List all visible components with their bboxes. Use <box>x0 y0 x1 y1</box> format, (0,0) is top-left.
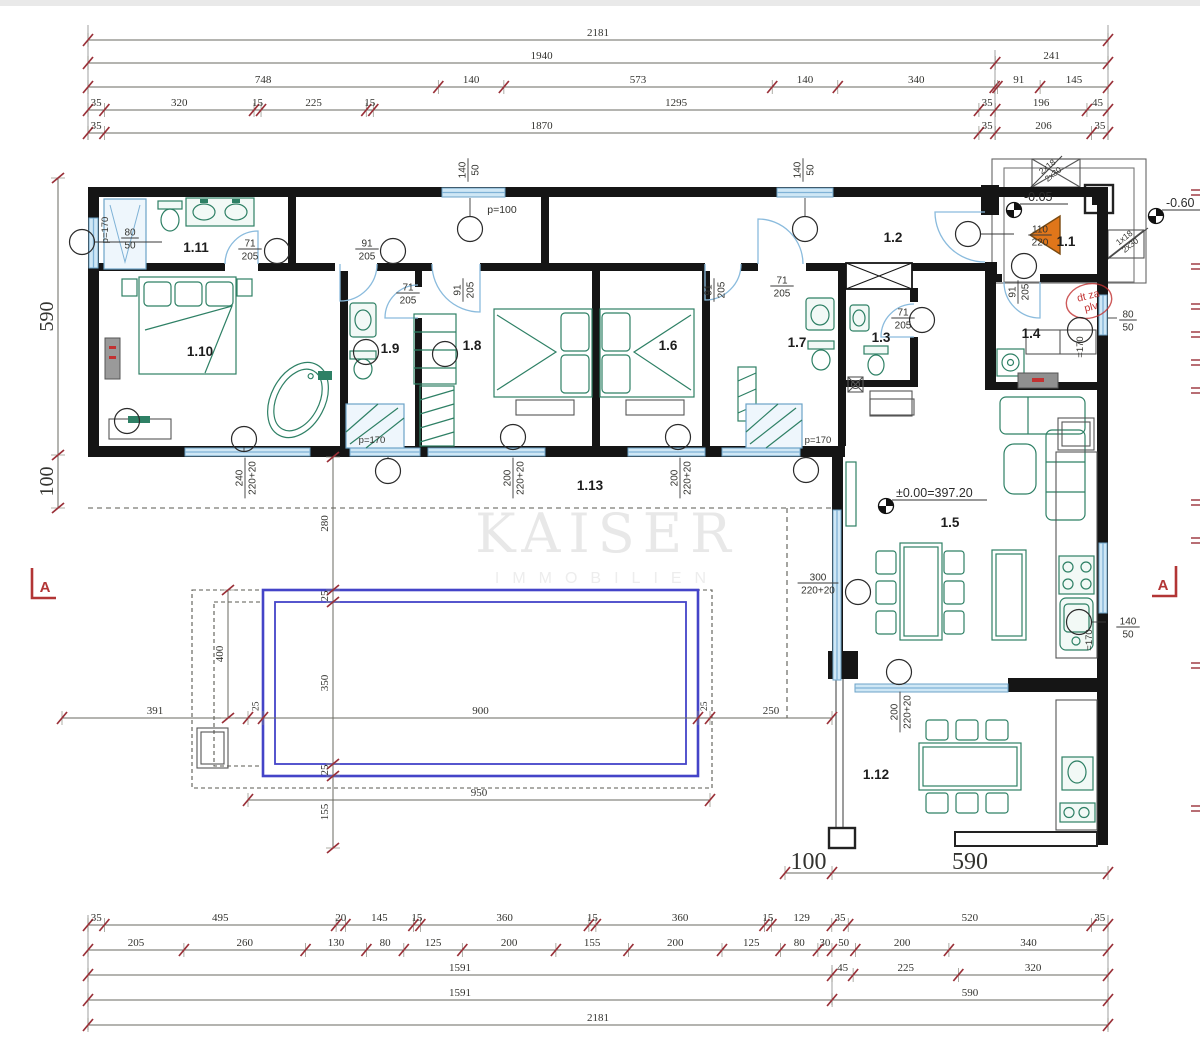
plan-note-text: p=170 <box>359 435 386 446</box>
dim-value: 45 <box>837 962 849 974</box>
room-label: 1.13 <box>577 478 604 493</box>
opening-size-label: 91205 <box>1008 280 1032 303</box>
outdoor-table <box>919 743 1021 790</box>
dim-value: 196 <box>1033 97 1050 109</box>
dim-value: 520 <box>962 912 979 924</box>
dim-value: 900 <box>472 705 489 717</box>
plan-note: p=170 <box>805 435 832 446</box>
coffee-table <box>1004 444 1036 494</box>
dim-value: 206 <box>1035 120 1052 132</box>
dim-value: 140 <box>1120 617 1137 628</box>
dim-value: 2181 <box>587 27 609 39</box>
chair <box>926 793 948 813</box>
opening-size-label: 240220+20 <box>235 458 259 499</box>
dim-value: 91 <box>1013 74 1024 86</box>
dim-value: 205 <box>400 296 417 307</box>
dim-value: 15 <box>252 97 264 109</box>
dim-value: 130 <box>328 937 345 949</box>
dim-value: 140 <box>797 74 814 86</box>
dim-value: 91 <box>1008 286 1019 298</box>
door-1-7 <box>758 219 803 264</box>
dim-value: 200 <box>890 703 901 720</box>
dim-value: 573 <box>630 74 647 86</box>
plan-note: 2x182x30 <box>1037 157 1064 184</box>
dim-value: 260 <box>236 937 253 949</box>
reference-circle <box>376 459 401 484</box>
dim-value: 225 <box>305 97 322 109</box>
room-label: 1.9 <box>381 341 400 356</box>
dim-value: 80 <box>380 937 392 949</box>
dim-value: 350 <box>319 674 331 691</box>
dim-value: 155 <box>319 803 331 820</box>
sink <box>350 303 376 337</box>
dim-value: 220 <box>1032 238 1049 249</box>
room-label: 1.11 <box>183 240 209 255</box>
dim-value: 125 <box>425 937 442 949</box>
dim-value: 205 <box>774 289 791 300</box>
reference-circle <box>458 217 483 242</box>
dim-value: 25 <box>252 701 262 711</box>
dim-value: 220+20 <box>801 586 835 597</box>
bed-bench <box>626 400 684 415</box>
dimension-chain: 400 <box>214 585 235 723</box>
dim-value: 35 <box>1094 912 1106 924</box>
dim-value: 1295 <box>665 97 688 109</box>
dim-value: 50 <box>806 164 817 176</box>
plan-note-text: p=170 <box>805 435 832 446</box>
nightstand <box>237 279 252 296</box>
dim-value: 2181 <box>587 1012 609 1024</box>
dim-value: 220+20 <box>903 695 914 729</box>
dimension-chain: 20526013080125200155200125803050200340 <box>83 937 1113 957</box>
dim-value: 340 <box>908 74 925 86</box>
bed <box>139 277 236 374</box>
plan-note-text: p=170 <box>100 217 111 244</box>
dim-value: 220+20 <box>248 461 259 495</box>
plan-note: p=170 <box>100 217 111 244</box>
room-label: 1.8 <box>463 338 482 353</box>
chair <box>956 793 978 813</box>
section-marker: A <box>32 568 56 598</box>
chair <box>944 611 964 634</box>
opening-size-label: 91205 <box>355 239 378 263</box>
tub-tap <box>318 371 332 380</box>
room-label: 1.6 <box>659 338 678 353</box>
dimension-chain: 1940241 <box>83 50 1113 70</box>
dim-value: 50 <box>1122 630 1134 641</box>
dimension-chain: 1591590 <box>83 987 1113 1007</box>
opening-size-label: 8050 <box>1119 310 1137 334</box>
opening-size-label: 71205 <box>770 276 793 300</box>
dim-value: 220+20 <box>516 461 527 495</box>
dim-value: 25 <box>319 590 331 602</box>
floor-plan-page: { "watermark": { "line1": "KAISER", "lin… <box>0 0 1200 1050</box>
chair <box>926 720 948 740</box>
dim-value: 200 <box>670 469 681 486</box>
dim-value: 15 <box>364 97 376 109</box>
bedroom-1-8 <box>494 309 592 415</box>
chair <box>986 793 1008 813</box>
opening-size-label: 71205 <box>891 308 914 332</box>
chair <box>956 720 978 740</box>
level-marker: -0.60 <box>1149 196 1200 224</box>
dim-value: 35 <box>91 97 103 109</box>
room-label: 1.1 <box>1057 234 1076 249</box>
dim-value: 400 <box>214 645 226 662</box>
room-label: 1.12 <box>863 767 889 782</box>
dim-value: 100 <box>791 849 827 875</box>
toilet <box>354 359 372 379</box>
dim-value: 30 <box>819 937 831 949</box>
reference-circle <box>666 425 691 450</box>
opening-size-label: 200220+20 <box>670 458 694 499</box>
dim-value: 140 <box>458 161 469 178</box>
opening-size-label: 14050 <box>458 158 482 181</box>
dimension-chain: 35495201451536015360151293552035 <box>83 912 1113 932</box>
level-symbol-wedge <box>1149 216 1157 224</box>
dim-value: 145 <box>1066 74 1083 86</box>
dim-value: 1870 <box>531 120 554 132</box>
dim-value: 280 <box>319 515 331 532</box>
dim-value: 20 <box>335 912 347 924</box>
dim-value: 205 <box>128 937 145 949</box>
dim-value: 590 <box>36 302 58 332</box>
tv-unit <box>846 462 856 526</box>
living-1-5 <box>846 397 1097 658</box>
dimension-chain: 2181 <box>83 1012 1113 1032</box>
opening-size-label: 200220+20 <box>890 692 914 733</box>
dim-value: 50 <box>838 937 850 949</box>
dim-value: 50 <box>471 164 482 176</box>
dim-value: 91 <box>453 284 464 296</box>
dim-value: 100 <box>36 467 58 497</box>
chair <box>944 551 964 574</box>
dim-value: 91 <box>361 239 373 250</box>
watermark-subtitle: IMMOBILIEN <box>495 570 719 587</box>
dimension-chain: 2802535025155 <box>319 452 340 853</box>
dim-value: 71 <box>897 308 909 319</box>
dim-value: 129 <box>793 912 810 924</box>
dim-value: 205 <box>359 252 376 263</box>
freestanding-tub <box>255 352 340 448</box>
entrance-porch <box>981 156 1148 283</box>
dim-value: 15 <box>762 912 774 924</box>
plan-note: p=100 <box>487 204 517 216</box>
wardrobe-hatched <box>420 386 454 446</box>
dim-value: 240 <box>235 469 246 486</box>
dim-value: 25 <box>700 701 710 711</box>
toilet <box>868 355 884 375</box>
terrace-column <box>829 828 855 848</box>
dim-value: 91 <box>704 284 715 296</box>
section-marker: A <box>1152 566 1176 596</box>
opening-size-label: 14050 <box>1116 617 1139 641</box>
dimension-chain: 2181 <box>83 27 1113 47</box>
dim-value: 300 <box>810 573 827 584</box>
dimension-chain: 74814057314034091145 <box>83 74 1113 94</box>
toilet-tank <box>158 201 182 209</box>
floor-plan-drawing: 2181194024174814057314034091145353201522… <box>0 0 1200 1050</box>
dim-value: 35 <box>982 97 994 109</box>
dim-value: 241 <box>1043 50 1060 62</box>
dim-value: 590 <box>962 987 979 999</box>
dim-value: 140 <box>793 161 804 178</box>
level-value: -0.60 <box>1166 196 1195 210</box>
bathroom-1-7 <box>738 298 834 448</box>
opening-size-label: 200220+20 <box>503 458 527 499</box>
sofa <box>1000 397 1085 434</box>
dim-value: 80 <box>124 228 136 239</box>
dim-value: 35 <box>982 120 994 132</box>
dim-value: 495 <box>212 912 229 924</box>
dim-value: 145 <box>371 912 388 924</box>
installation-shaft <box>846 263 912 289</box>
level-symbol-wedge <box>1007 210 1015 218</box>
dim-value: 200 <box>503 469 514 486</box>
nightstand <box>122 279 137 296</box>
dim-value: 125 <box>743 937 760 949</box>
dim-value: 340 <box>1020 937 1037 949</box>
bedroom-1-6 <box>600 309 694 415</box>
section-letter: A <box>1158 577 1169 594</box>
pool-tech-shaft-inner <box>201 732 224 764</box>
dim-value: 200 <box>667 937 684 949</box>
watermark: KAISER IMMOBILIEN <box>475 502 739 587</box>
room-label: 1.2 <box>884 230 903 245</box>
dim-value: 225 <box>897 962 914 974</box>
grill <box>1060 803 1095 822</box>
water-heater <box>870 391 912 416</box>
plan-note: =170 <box>1075 336 1086 357</box>
dim-value: 50 <box>1122 323 1134 334</box>
dim-value: 80 <box>1122 310 1134 321</box>
kitchen-island <box>992 550 1026 640</box>
room-label: 1.5 <box>941 515 960 530</box>
front-door <box>935 212 985 262</box>
chair <box>876 551 896 574</box>
bed-bench <box>516 400 574 415</box>
terrace-1-12 <box>919 700 1097 830</box>
dim-value: 140 <box>463 74 480 86</box>
pool <box>197 590 698 776</box>
plan-note-text: =170 <box>1075 336 1086 357</box>
reference-circle <box>887 660 912 685</box>
dim-value: 360 <box>672 912 689 924</box>
dim-value: 80 <box>794 937 806 949</box>
reference-circle <box>793 217 818 242</box>
dim-value: 35 <box>1094 120 1106 132</box>
dim-value: 71 <box>402 283 414 294</box>
dim-value: 220+20 <box>683 461 694 495</box>
dim-value: 1591 <box>449 962 471 974</box>
plan-note: p=170 <box>359 435 386 446</box>
reference-circle <box>265 239 290 264</box>
bathroom-1-9 <box>346 303 404 448</box>
room-label: 1.7 <box>788 335 807 350</box>
watermark-name: KAISER <box>475 502 739 565</box>
dim-value: 360 <box>496 912 513 924</box>
reference-circle <box>910 308 935 333</box>
opening-size-label: 14050 <box>793 158 817 181</box>
level-marker: ±0.00=397.20 <box>879 486 988 514</box>
toilet-tank <box>864 346 888 354</box>
level-value: ±0.00=397.20 <box>896 486 973 500</box>
reference-circle <box>846 580 871 605</box>
dim-value: 748 <box>255 74 272 86</box>
toilet-tank <box>808 341 834 349</box>
dimension-chain: 3912590025250 <box>57 701 837 725</box>
dimension-chain: 3518703520635 <box>83 120 1113 140</box>
level-value: -0.05 <box>1024 190 1053 204</box>
sofa-chaise <box>1046 430 1085 520</box>
chair <box>876 581 896 604</box>
dim-value: 205 <box>717 281 728 298</box>
dim-value: 1940 <box>531 50 554 62</box>
toilet <box>812 350 830 370</box>
dim-value: 950 <box>471 787 488 799</box>
plan-note-text: p=100 <box>487 204 517 216</box>
reference-circle <box>433 342 458 367</box>
dim-value: 71 <box>776 276 788 287</box>
dim-value: 250 <box>763 705 780 717</box>
reference-circle <box>956 222 981 247</box>
pool-tech-shaft <box>197 728 228 768</box>
dim-value: 35 <box>91 120 103 132</box>
dim-value: 320 <box>1025 962 1042 974</box>
dim-value: 71 <box>244 239 256 250</box>
dimension-chain: 950 <box>243 787 715 807</box>
dim-value: 205 <box>242 252 259 263</box>
outdoor-sink <box>1062 757 1093 790</box>
dim-value: 15 <box>587 912 599 924</box>
dim-value: 391 <box>147 705 164 717</box>
level-symbol-wedge <box>879 506 887 514</box>
dim-value: 35 <box>835 912 847 924</box>
dim-value: 35 <box>91 912 103 924</box>
reference-circle <box>1012 254 1037 279</box>
dimension-chain: 590100 <box>36 173 65 513</box>
toilet <box>161 209 179 231</box>
terrace-south-wall <box>955 832 1097 846</box>
bedroom-1-10 <box>105 277 341 448</box>
room-label: 1.3 <box>872 330 891 345</box>
dimension-chain: 35320152251512953519645 <box>83 97 1113 117</box>
sideboard <box>870 399 914 415</box>
reference-circle <box>501 425 526 450</box>
chair <box>944 581 964 604</box>
dim-value: 1591 <box>449 987 471 999</box>
dim-value: 590 <box>952 849 988 875</box>
dim-value: 15 <box>411 912 423 924</box>
dim-value: 200 <box>894 937 911 949</box>
reference-circle <box>794 458 819 483</box>
dim-value: 45 <box>1092 97 1104 109</box>
opening-size-label: 91205 <box>453 278 477 301</box>
reference-circle <box>381 239 406 264</box>
chair <box>876 611 896 634</box>
dimension-chain: 100590 <box>780 849 1113 880</box>
dim-value: 320 <box>171 97 188 109</box>
dim-value: 50 <box>124 241 136 252</box>
dim-value: 155 <box>584 937 601 949</box>
dim-value: 200 <box>501 937 518 949</box>
dining-table <box>900 543 942 640</box>
room-label: 1.4 <box>1022 326 1041 341</box>
dim-value: 205 <box>1021 283 1032 300</box>
dimension-chain: 159145225320 <box>83 962 1113 982</box>
room-label: 1.10 <box>187 344 213 359</box>
dim-value: 110 <box>1032 225 1048 236</box>
dim-value: 25 <box>319 764 331 776</box>
double-vanity <box>186 198 254 226</box>
chair <box>986 720 1008 740</box>
section-letter: A <box>40 579 51 596</box>
washing-machine <box>997 349 1024 376</box>
dim-value: 205 <box>466 281 477 298</box>
